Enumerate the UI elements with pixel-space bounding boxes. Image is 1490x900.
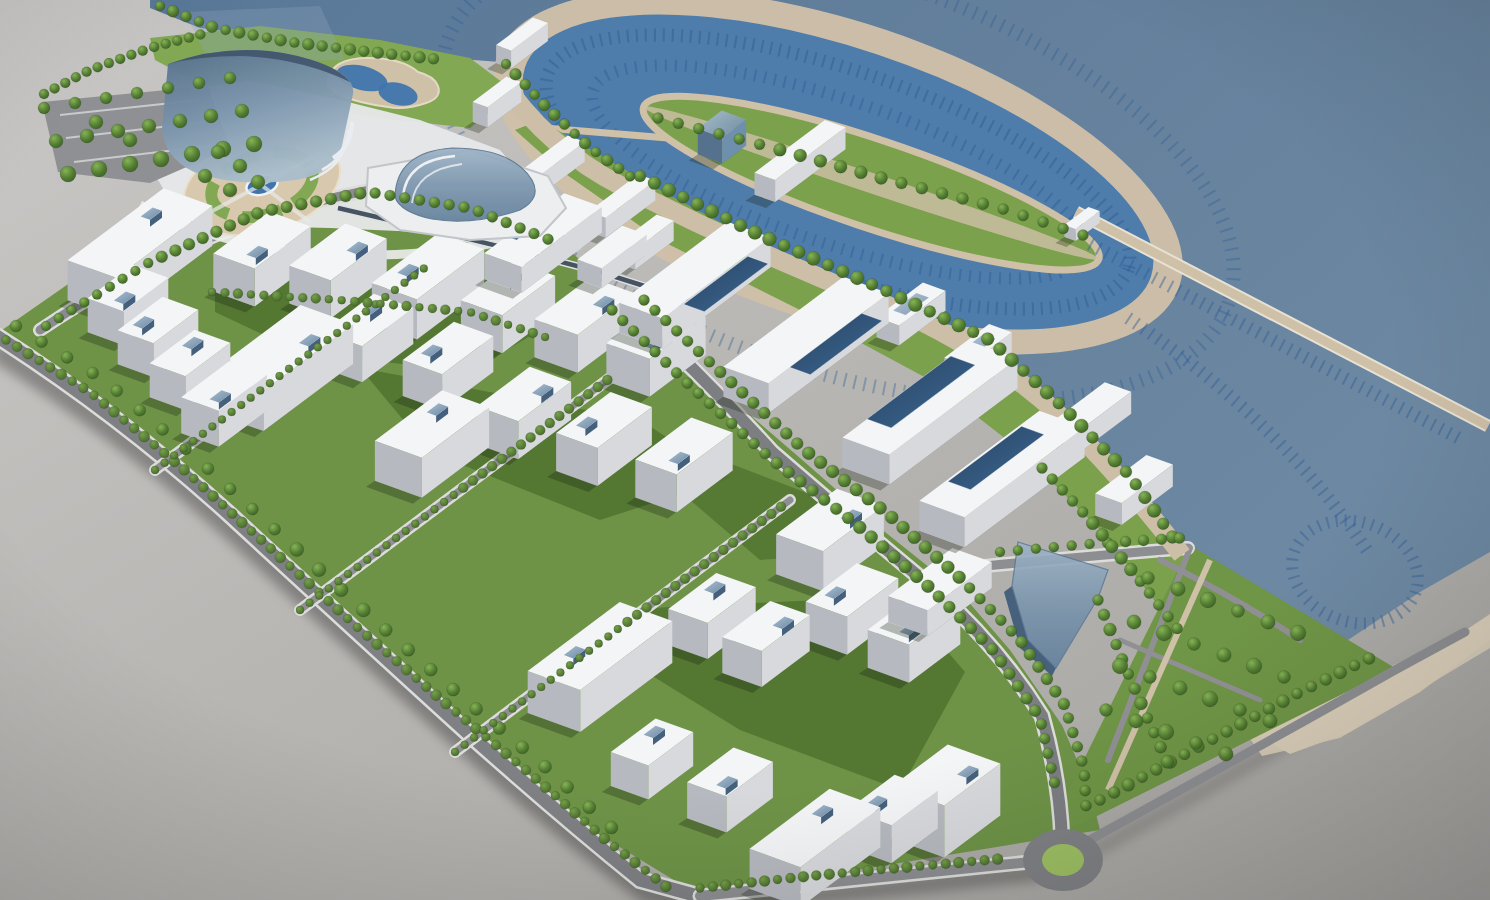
roundabout-island xyxy=(1042,844,1084,876)
scene-svg xyxy=(0,0,1490,900)
masterplan-render: Waterfront masterplan — aerial 3D archit… xyxy=(0,0,1490,900)
